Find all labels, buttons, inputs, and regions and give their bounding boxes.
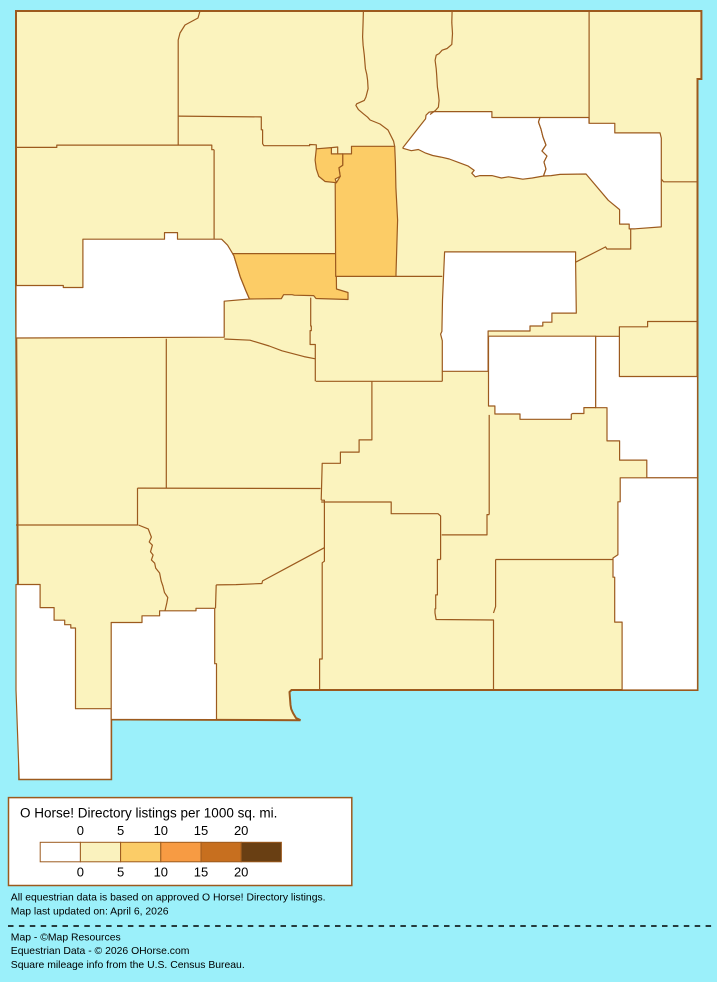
svg-text:Map - ©Map Resources: Map - ©Map Resources (11, 932, 121, 943)
svg-text:Map last updated on: April 6,: Map last updated on: April 6, 2026 (11, 907, 169, 918)
svg-text:15: 15 (194, 823, 208, 838)
svg-text:5: 5 (117, 865, 124, 880)
svg-text:O Horse! Directory listings pe: O Horse! Directory listings per 1000 sq.… (20, 806, 277, 821)
svg-text:15: 15 (194, 865, 208, 880)
svg-text:All equestrian data is based o: All equestrian data is based on approved… (11, 893, 326, 904)
svg-text:10: 10 (154, 823, 168, 838)
svg-text:Square mileage info from the U: Square mileage info from the U.S. Census… (11, 960, 245, 971)
svg-text:10: 10 (154, 865, 168, 880)
svg-text:5: 5 (117, 823, 124, 838)
svg-text:0: 0 (77, 865, 84, 880)
svg-text:Equestrian Data - © 2026 OHors: Equestrian Data - © 2026 OHorse.com (11, 946, 190, 957)
svg-text:20: 20 (234, 865, 248, 880)
svg-text:0: 0 (77, 823, 84, 838)
svg-text:20: 20 (234, 823, 248, 838)
